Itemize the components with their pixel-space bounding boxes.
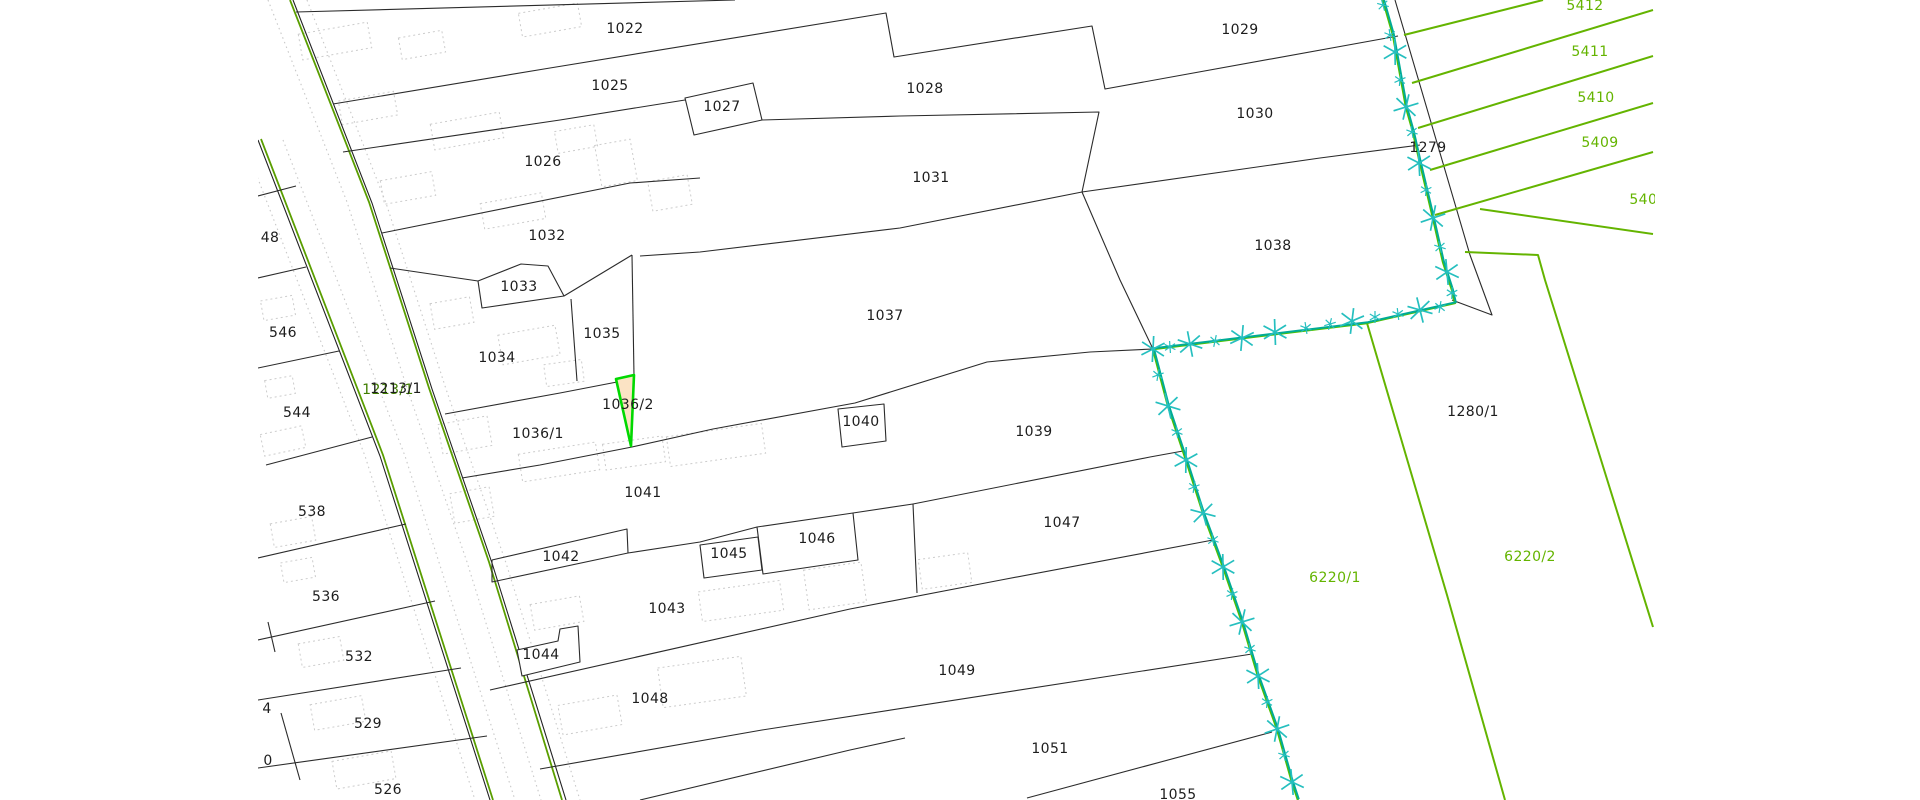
parcel-label-1033: 1033 bbox=[500, 279, 537, 295]
parcel-label-1037: 1037 bbox=[866, 308, 903, 324]
parcel-label-5411: 5411 bbox=[1571, 44, 1608, 60]
parcel-label-544: 544 bbox=[283, 405, 311, 421]
boundary-marker-small bbox=[1445, 286, 1459, 300]
boundary-marker-large bbox=[1336, 305, 1369, 338]
boundary-marker-large bbox=[1260, 712, 1294, 746]
parcel-label-1047: 1047 bbox=[1043, 515, 1080, 531]
parcel-label-1038: 1038 bbox=[1254, 238, 1291, 254]
parcel-label-6220-1: 6220/1 bbox=[1309, 570, 1361, 586]
boundary-marker-small bbox=[1419, 183, 1434, 198]
boundary-marker-small bbox=[1393, 73, 1408, 88]
boundary-marker-large bbox=[1416, 201, 1450, 235]
parcel-label-48: 48 bbox=[261, 230, 280, 246]
parcel-labels: 1022102510261027102810291030103110321033… bbox=[261, 0, 1667, 800]
parcel-label-1048: 1048 bbox=[631, 691, 668, 707]
road-parcel-label: 1213/1 1213/1 bbox=[362, 381, 422, 398]
parcel-label-0: 0 bbox=[263, 753, 272, 769]
boundary-marker-small bbox=[1225, 587, 1240, 602]
parcel-label-1028: 1028 bbox=[906, 81, 943, 97]
parcel-label-4: 4 bbox=[262, 701, 271, 717]
parcel-label-1027: 1027 bbox=[703, 99, 740, 115]
parcel-label-1034: 1034 bbox=[478, 350, 515, 366]
boundary-marker-large bbox=[1277, 767, 1306, 796]
parcel-label-532: 532 bbox=[345, 649, 373, 665]
parcel-label-546: 546 bbox=[269, 325, 297, 341]
boundary-marker-large bbox=[1155, 393, 1181, 419]
parcel-label-5409: 5409 bbox=[1581, 135, 1618, 151]
parcel-label-538: 538 bbox=[298, 504, 326, 520]
parcel-label-1031: 1031 bbox=[912, 170, 949, 186]
boundary-marker-large bbox=[1170, 444, 1201, 475]
road-label-black: 1213/1 bbox=[370, 381, 422, 397]
boundary-marker-large bbox=[1380, 37, 1410, 67]
parcel-label-529: 529 bbox=[354, 716, 382, 732]
parcel-label-1046: 1046 bbox=[798, 531, 835, 547]
boundary-marker-small bbox=[1260, 695, 1275, 710]
parcel-label-536: 536 bbox=[312, 589, 340, 605]
parcel-label-1043: 1043 bbox=[648, 601, 685, 617]
parcel-label-5408: 5408 bbox=[1629, 192, 1666, 208]
road bbox=[243, 0, 580, 800]
parcel-label-1280-1: 1280/1 bbox=[1447, 404, 1499, 420]
parcel-label-1022: 1022 bbox=[606, 21, 643, 37]
boundary-marker-large bbox=[1432, 257, 1461, 286]
parcel-label-1025: 1025 bbox=[591, 78, 628, 94]
map-viewport: 1213/1 1213/1 10221025102610271028102910… bbox=[0, 0, 1920, 800]
parcel-label-1041: 1041 bbox=[624, 485, 661, 501]
surveyed-boundary bbox=[1153, 0, 1456, 800]
boundary-marker-large bbox=[1225, 605, 1259, 639]
parcel-label-5410: 5410 bbox=[1577, 90, 1614, 106]
boundary-marker-large bbox=[1190, 500, 1215, 525]
map-canvas[interactable]: 1213/1 1213/1 10221025102610271028102910… bbox=[0, 0, 1920, 800]
boundary-marker-small bbox=[1170, 425, 1183, 438]
parcel-boundaries bbox=[258, 0, 1492, 800]
parcel-label-1036-1: 1036/1 bbox=[512, 426, 564, 442]
parcel-label-1030: 1030 bbox=[1236, 106, 1273, 122]
parcel-label-6220-2: 6220/2 bbox=[1504, 549, 1556, 565]
parcel-label-1044: 1044 bbox=[522, 647, 559, 663]
parcel-label-1042: 1042 bbox=[542, 549, 579, 565]
boundary-point-markers bbox=[1137, 0, 1461, 797]
boundary-marker-large bbox=[1243, 661, 1273, 691]
parcel-label-1036-2: 1036/2 bbox=[602, 397, 654, 413]
parcel-label-1026: 1026 bbox=[524, 154, 561, 170]
parcel-label-1040: 1040 bbox=[842, 414, 879, 430]
parcel-label-1051: 1051 bbox=[1031, 741, 1068, 757]
parcel-label-1029: 1029 bbox=[1221, 22, 1258, 38]
boundary-marker-small bbox=[1322, 316, 1338, 332]
parcel-label-5412: 5412 bbox=[1566, 0, 1603, 14]
parcel-label-1279: 1279 bbox=[1409, 140, 1446, 156]
parcel-label-526: 526 bbox=[374, 782, 402, 798]
parcel-label-1032: 1032 bbox=[528, 228, 565, 244]
parcel-label-1035: 1035 bbox=[583, 326, 620, 342]
parcel-label-1049: 1049 bbox=[938, 663, 975, 679]
parcel-label-1055: 1055 bbox=[1159, 787, 1196, 800]
parcel-label-1045: 1045 bbox=[710, 546, 747, 562]
parcel-label-1039: 1039 bbox=[1015, 424, 1052, 440]
boundary-marker-small bbox=[1300, 322, 1313, 335]
boundary-marker-large bbox=[1208, 552, 1238, 582]
boundary-marker-large bbox=[1389, 90, 1423, 124]
